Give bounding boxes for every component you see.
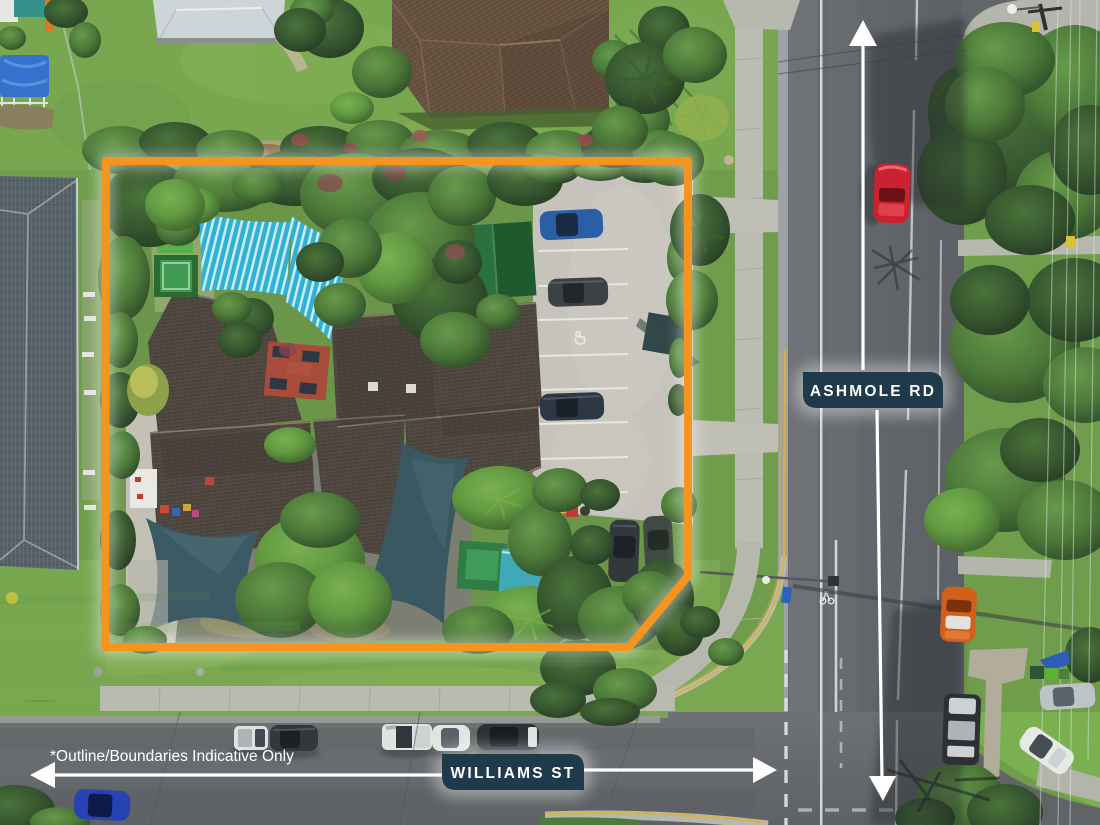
svg-text:ASHMOLE RD: ASHMOLE RD xyxy=(810,383,936,400)
svg-text:WILLIAMS ST: WILLIAMS ST xyxy=(451,765,576,782)
svg-text:*Outline/Boundaries Indicative: *Outline/Boundaries Indicative Only xyxy=(50,748,294,765)
